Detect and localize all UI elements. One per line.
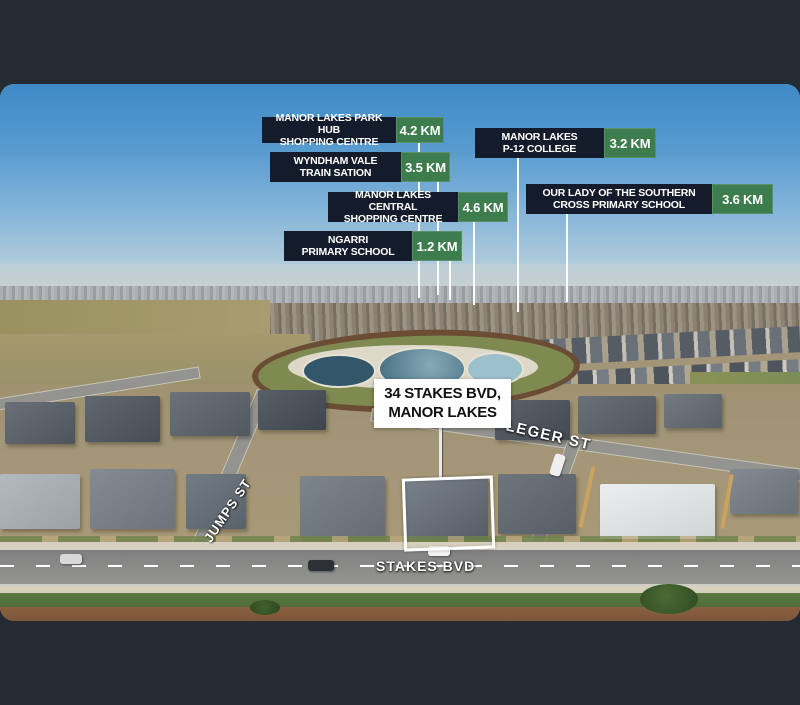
distance-badge: 3.6 KM [712, 184, 773, 214]
leader-line [473, 220, 475, 305]
property-pointer-line [439, 426, 442, 478]
kerb-line [0, 548, 800, 550]
car [308, 560, 334, 571]
amenity-label-p12-college: MANOR LAKES P-12 COLLEGE 3.2 KM [475, 128, 656, 158]
amenity-name-line2: P-12 COLLEGE [481, 143, 598, 155]
amenity-name-line2: SHOPPING CENTRE [334, 213, 452, 225]
house-roof [300, 476, 385, 538]
amenity-name: WYNDHAM VALE TRAIN SATION [270, 152, 401, 182]
amenity-name: MANOR LAKES CENTRAL SHOPPING CENTRE [328, 192, 458, 222]
amenity-name-line1: MANOR LAKES CENTRAL [334, 189, 452, 213]
amenity-name-line2: SHOPPING CENTRE [268, 136, 390, 148]
amenity-label-ngarri-school: NGARRI PRIMARY SCHOOL 1.2 KM [284, 231, 462, 261]
house-roof [730, 469, 798, 514]
amenity-label-train-station: WYNDHAM VALE TRAIN SATION 3.5 KM [270, 152, 450, 182]
distance-badge: 4.6 KM [458, 192, 508, 222]
leader-line [566, 212, 568, 302]
amenity-name-line1: WYNDHAM VALE [276, 155, 395, 167]
house-roof [5, 402, 75, 444]
distance-badge: 1.2 KM [412, 231, 462, 261]
amenity-name-line1: MANOR LAKES PARK HUB [268, 112, 390, 136]
leader-line [449, 259, 451, 300]
property-address-label: 34 STAKES BVD, MANOR LAKES [374, 379, 511, 428]
street-label-stakes-bvd: STAKES BVD [376, 558, 475, 574]
real-estate-aerial-image: MANOR LAKES PARK HUB SHOPPING CENTRE 4.2… [0, 0, 800, 705]
amenity-name: OUR LADY OF THE SOUTHERN CROSS PRIMARY S… [526, 184, 712, 214]
property-address-line2: MANOR LAKES [376, 403, 509, 422]
house-roof [0, 474, 80, 529]
tree [640, 584, 698, 614]
distance-badge: 3.2 KM [604, 128, 656, 158]
property-address-line1: 34 STAKES BVD, [376, 384, 509, 403]
distance-badge: 3.5 KM [401, 152, 450, 182]
house-roof [664, 394, 722, 428]
amenity-name: NGARRI PRIMARY SCHOOL [284, 231, 412, 261]
amenity-name-line1: MANOR LAKES [481, 131, 598, 143]
house-roof [600, 484, 715, 539]
amenity-name: MANOR LAKES PARK HUB SHOPPING CENTRE [262, 117, 396, 143]
car [60, 554, 82, 564]
amenity-label-central-shopping: MANOR LAKES CENTRAL SHOPPING CENTRE 4.6 … [328, 192, 508, 222]
amenity-label-our-lady-school: OUR LADY OF THE SOUTHERN CROSS PRIMARY S… [526, 184, 773, 214]
amenity-name: MANOR LAKES P-12 COLLEGE [475, 128, 604, 158]
house-roof [170, 392, 250, 436]
leader-line [517, 156, 519, 312]
amenity-name-line2: TRAIN SATION [276, 167, 395, 179]
tree [250, 600, 280, 615]
amenity-name-line1: NGARRI [290, 234, 406, 246]
house-roof [578, 396, 656, 434]
amenity-name-line2: CROSS PRIMARY SCHOOL [532, 199, 706, 211]
distance-badge: 4.2 KM [396, 117, 444, 143]
house-roof [85, 396, 160, 442]
amenity-label-park-hub: MANOR LAKES PARK HUB SHOPPING CENTRE 4.2… [262, 117, 444, 143]
amenity-name-line1: OUR LADY OF THE SOUTHERN [532, 187, 706, 199]
pond [302, 354, 376, 388]
house-roof [498, 474, 576, 534]
house-roof [258, 390, 326, 430]
property-boundary-outline [402, 475, 495, 551]
house-roof [90, 469, 175, 529]
amenity-name-line2: PRIMARY SCHOOL [290, 246, 406, 258]
